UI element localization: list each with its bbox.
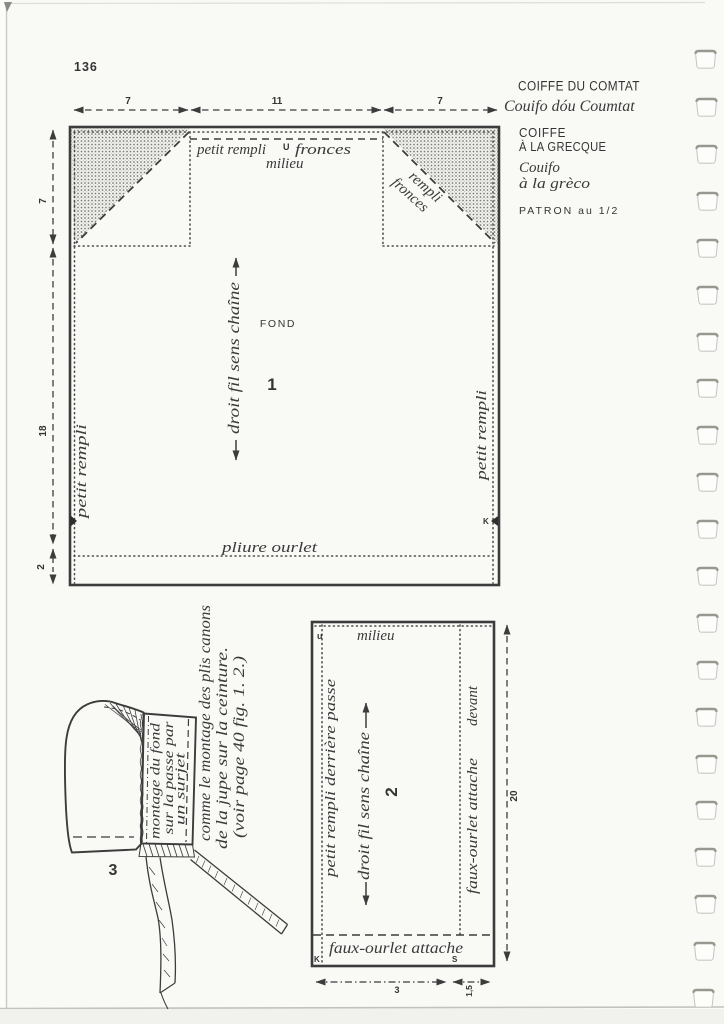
svg-text:136: 136 bbox=[74, 60, 98, 74]
svg-text:milieu: milieu bbox=[357, 628, 395, 644]
svg-text:2: 2 bbox=[382, 787, 401, 796]
svg-text:1,5: 1,5 bbox=[464, 985, 474, 997]
svg-text:faux-ourlet attache: faux-ourlet attache bbox=[329, 940, 463, 957]
svg-text:18: 18 bbox=[38, 425, 49, 437]
svg-text:2: 2 bbox=[36, 564, 47, 570]
svg-text:petit rempli: petit rempli bbox=[196, 142, 266, 158]
svg-text:U: U bbox=[283, 142, 290, 152]
svg-text:3: 3 bbox=[109, 862, 118, 879]
svg-text:S: S bbox=[452, 955, 458, 964]
svg-text:faux-ourlet attache: faux-ourlet attache bbox=[465, 758, 481, 894]
svg-text:petit rempli derrière passe: petit rempli derrière passe bbox=[323, 679, 339, 879]
svg-text:(voir page 40 fig. 1. 2.): (voir page 40 fig. 1. 2.) bbox=[231, 656, 248, 838]
svg-text:comme le montage des plis cano: comme le montage des plis canons bbox=[197, 605, 214, 841]
svg-text:3: 3 bbox=[394, 985, 399, 995]
svg-text:Couifo dóu Coumtat: Couifo dóu Coumtat bbox=[504, 98, 635, 115]
svg-text:7: 7 bbox=[437, 96, 443, 107]
svg-text:7: 7 bbox=[125, 96, 131, 107]
svg-text:droit fil sens chaîne: droit fil sens chaîne bbox=[226, 282, 243, 434]
svg-text:PATRON au 1/2: PATRON au 1/2 bbox=[519, 205, 619, 217]
svg-text:1: 1 bbox=[267, 375, 276, 394]
svg-text:à la grèco: à la grèco bbox=[519, 176, 591, 192]
svg-text:Couifo: Couifo bbox=[519, 160, 560, 176]
svg-text:20: 20 bbox=[509, 790, 520, 802]
svg-text:un surjet: un surjet bbox=[174, 751, 189, 825]
svg-text:À LA GRECQUE: À LA GRECQUE bbox=[519, 138, 606, 154]
svg-text:de la jupe sur la ceinture.: de la jupe sur la ceinture. bbox=[214, 647, 231, 849]
svg-text:11: 11 bbox=[272, 96, 283, 107]
svg-text:devant: devant bbox=[465, 685, 481, 726]
svg-text:milieu: milieu bbox=[266, 156, 304, 172]
svg-text:7: 7 bbox=[38, 198, 49, 204]
svg-text:K: K bbox=[314, 955, 320, 964]
svg-text:FOND: FOND bbox=[260, 318, 296, 330]
svg-text:pliure ourlet: pliure ourlet bbox=[221, 540, 318, 556]
svg-text:petit rempli: petit rempli bbox=[74, 424, 90, 519]
svg-text:COIFFE: COIFFE bbox=[519, 125, 566, 140]
svg-text:droit fil sens chaîne: droit fil sens chaîne bbox=[356, 732, 373, 880]
svg-text:COIFFE DU COMTAT: COIFFE DU COMTAT bbox=[518, 78, 640, 94]
svg-text:K: K bbox=[483, 517, 489, 526]
svg-text:petit rempli: petit rempli bbox=[474, 390, 490, 481]
svg-text:u: u bbox=[317, 631, 323, 641]
